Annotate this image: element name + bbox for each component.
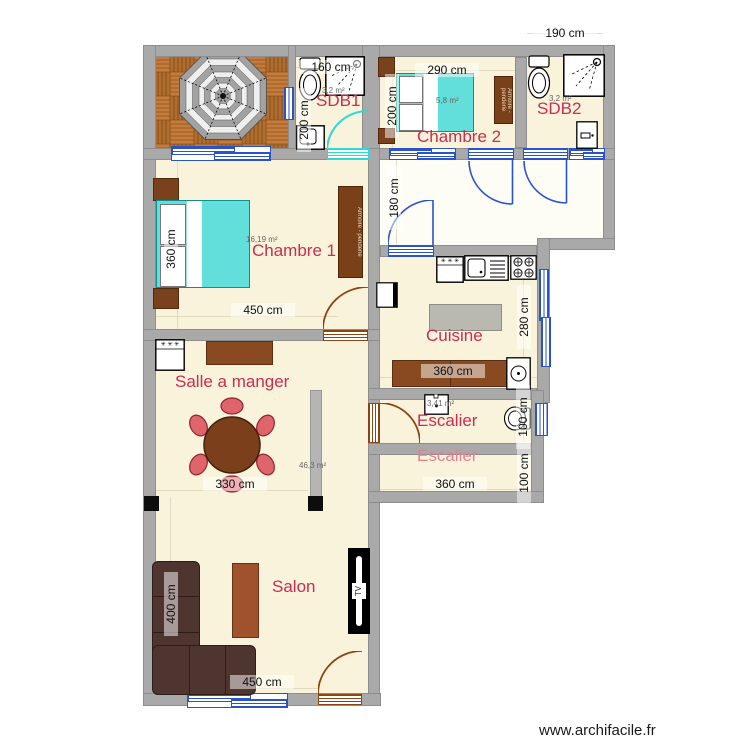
window-sdb2-bottom[interactable] [569, 148, 605, 160]
room-area-escalier1: 3,41 m² [427, 399, 454, 408]
room-area-chambre2: 5,8 m² [436, 96, 459, 105]
room-label-salon: Salon [272, 578, 315, 596]
dim-salle-width: 330 cm [203, 477, 267, 491]
radiator-cuisine-icon[interactable] [376, 282, 398, 308]
room-label-cuisine: Cuisine [426, 327, 483, 345]
radiator-sdb2-icon[interactable] [576, 121, 598, 149]
dim-sdb1-depth: 200 cm [297, 88, 311, 152]
door-salon-leaf[interactable] [318, 694, 362, 705]
room-label-sdb1: SDB1 [316, 92, 360, 110]
room-area-salle-a-manger: 46,3 m² [299, 461, 326, 470]
door-escalier-swing[interactable] [380, 403, 420, 443]
window-escalier1-right[interactable] [535, 403, 548, 436]
stove-hob-icon[interactable] [510, 255, 537, 280]
terrace-deck[interactable] [146, 48, 288, 148]
floor-plan-canvas: Armoire - penderie Armoire - penderie ✳ … [0, 0, 750, 750]
nightstand-icon[interactable] [153, 288, 179, 309]
watermark-archifacile: www.archifacile.fr [539, 722, 656, 739]
kitchen-sink-icon[interactable] [464, 255, 509, 281]
column-left[interactable] [144, 496, 159, 511]
dim-hall-depth: 180 cm [387, 166, 401, 230]
door-chambre2-leaf[interactable] [468, 148, 514, 160]
door-chambre1-swing[interactable] [323, 287, 368, 329]
dim-salon-depth: 400 cm [164, 572, 178, 636]
room-label-chambre1: Chambre 1 [252, 242, 336, 260]
dim-sdb1-width: 160 cm [299, 60, 363, 74]
room-label-salle-a-manger: Salle a manger [175, 373, 289, 391]
window-cuisine-right-1[interactable] [539, 269, 549, 321]
window-salon-bottom[interactable] [187, 693, 288, 708]
window-cuisine-right-2[interactable] [541, 317, 551, 367]
door-cuisine-leaf[interactable] [388, 245, 434, 257]
sideboard-dining[interactable] [206, 341, 273, 365]
wall-hallway-bottom[interactable] [545, 238, 615, 250]
window-chambre1-top[interactable] [171, 146, 271, 161]
dim-cuisine-width: 360 cm [421, 364, 485, 378]
dim-chambre1-depth: 360 cm [164, 217, 178, 281]
wall-partial-dining[interactable] [310, 390, 322, 497]
column-middle[interactable] [308, 496, 323, 511]
nightstand-icon[interactable] [153, 178, 179, 201]
dim-escalier1-depth: 100 cm [516, 385, 530, 449]
fridge-dining-icon[interactable]: ✳ ✳ ✳ [155, 339, 185, 371]
dim-escalier2-width: 360 cm [423, 477, 487, 491]
dim-cuisine-depth: 280 cm [517, 285, 531, 349]
coffee-table[interactable] [232, 563, 259, 638]
wardrobe-chambre2[interactable]: Armoire - penderie [494, 76, 513, 124]
parasol-icon[interactable] [180, 53, 267, 140]
tv-label: TV [352, 583, 366, 599]
svg-text:✳ ✳ ✳: ✳ ✳ ✳ [161, 341, 179, 348]
door-sdb2-leaf[interactable] [523, 148, 568, 160]
tv-unit[interactable]: TV [348, 548, 370, 634]
room-label-chambre2: Chambre 2 [417, 128, 501, 146]
window-terrace-right[interactable] [284, 87, 294, 120]
door-sdb1-swing[interactable] [327, 110, 369, 152]
room-label-sdb2: SDB2 [537, 100, 581, 118]
wardrobe-chambre1[interactable]: Armoire - penderie [338, 186, 363, 278]
dim-chambre1-width: 450 cm [231, 303, 295, 317]
door-chambre1-leaf[interactable] [323, 330, 368, 341]
door-chambre2-swing[interactable] [468, 160, 514, 206]
door-escalier-leaf[interactable] [368, 403, 380, 443]
fridge-cuisine-icon[interactable]: ✳ ✳ ✳ [436, 256, 464, 283]
door-sdb2-swing[interactable] [523, 160, 568, 205]
room-label-escalier2: Escalier [417, 447, 477, 465]
room-label-escalier1: Escalier [417, 412, 477, 430]
bed-chambre2[interactable] [396, 73, 474, 132]
dim-chambre2-width: 290 cm [415, 63, 479, 77]
door-salon-swing[interactable] [318, 651, 362, 694]
dim-escalier2-depth: 100 cm [517, 441, 531, 505]
dim-salon-width: 450 cm [230, 675, 294, 689]
window-chambre2-bottom[interactable] [389, 148, 456, 160]
dim-sdb2-width: 190 cm [533, 26, 597, 40]
svg-text:✳ ✳ ✳: ✳ ✳ ✳ [441, 258, 459, 265]
dim-chambre2-bed: 200 cm [385, 74, 399, 138]
shower-sdb2-icon[interactable] [563, 54, 605, 97]
